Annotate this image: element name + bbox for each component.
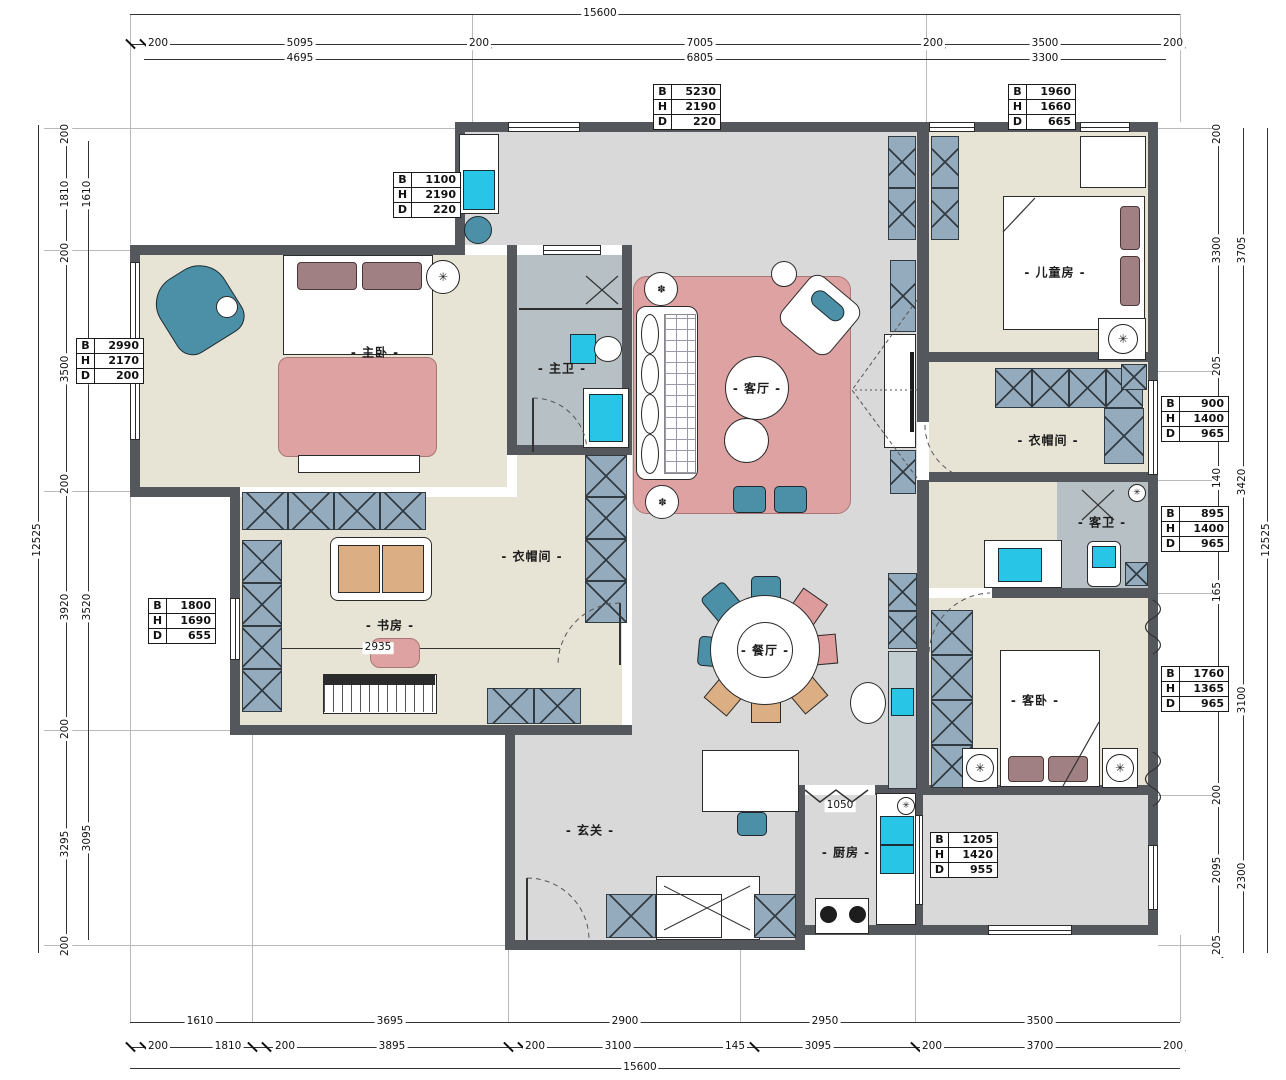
wardrobe-cell (585, 539, 627, 581)
spec-row: B5230 (654, 85, 720, 100)
wardrobe-cell (585, 455, 627, 497)
pillow (1048, 756, 1088, 782)
spec-row: B1100 (394, 173, 460, 188)
wardrobe-cell (242, 540, 282, 583)
bath-cabinet (1125, 562, 1148, 586)
spec-key: H (654, 100, 672, 114)
dim: 140 (1212, 466, 1224, 490)
spec-value: 1760 (1180, 667, 1228, 681)
dim: 200 (60, 122, 72, 146)
dim: 5095 (285, 38, 316, 50)
wardrobe-cell (1104, 408, 1144, 464)
ext-line (472, 14, 473, 122)
window-balcony-bottom (988, 925, 1072, 935)
toilet-strip (850, 682, 886, 724)
dim: 200 (1212, 783, 1224, 807)
wardrobe-cell (931, 188, 959, 240)
window-kitchen-balcony (915, 815, 923, 905)
spec-key: B (1162, 507, 1180, 521)
shoe-cabinet (606, 894, 656, 938)
sofa-cushion (641, 434, 659, 474)
room-label-living: - 客厅 - (733, 380, 781, 397)
side-table-living: ✽ (645, 485, 679, 519)
spec-key: D (1162, 697, 1180, 711)
room-label-study: - 书房 - (366, 617, 414, 634)
dim: 200 (921, 38, 945, 50)
dim: 200 (60, 934, 72, 958)
spec-key: H (1162, 522, 1180, 536)
ext-line (1158, 593, 1212, 594)
spec-value: 2190 (672, 100, 720, 114)
dim: 15600 (621, 1062, 658, 1074)
spec-key: H (1009, 100, 1027, 114)
spec-value: 1100 (412, 173, 460, 187)
dim: 3920 (60, 592, 72, 623)
dim: 7005 (685, 38, 716, 50)
coffee-table-small (724, 418, 769, 463)
dim: 1810 (60, 179, 72, 210)
ext-line (740, 950, 741, 1022)
basin (464, 216, 492, 244)
room-label-cloak-left: - 衣帽间 - (501, 548, 562, 565)
window-master-bath (543, 245, 601, 255)
wall-foyer-left (505, 725, 515, 950)
dim: 4695 (285, 53, 316, 65)
armchair-cushion (807, 287, 848, 325)
dim: 3500 (1025, 1016, 1056, 1028)
spec-row: H2190 (654, 100, 720, 115)
dim: 200 (1212, 122, 1224, 146)
cabinet-spec-table: B1760 H1365 D965 (1161, 666, 1229, 712)
wardrobe-cell (534, 688, 581, 724)
spec-row: H1365 (1162, 682, 1228, 697)
dim: 205 (1212, 933, 1224, 957)
spec-row: B900 (1162, 397, 1228, 412)
tv-cabinet-hatch (890, 450, 916, 494)
piano (323, 674, 437, 714)
spec-value: 1960 (1027, 85, 1075, 99)
spec-row: H1660 (1009, 100, 1075, 115)
kitchen-sink (880, 816, 914, 874)
spec-key: H (149, 614, 167, 628)
ext-line (1158, 480, 1212, 481)
room-label-guest-bath: - 客卫 - (1078, 514, 1126, 531)
ext-line (1180, 935, 1181, 1022)
window-balcony-right (1148, 845, 1158, 910)
spec-row: D220 (654, 115, 720, 129)
spec-key: D (1162, 427, 1180, 441)
dim: 3095 (82, 823, 94, 854)
spec-key: D (77, 369, 95, 383)
pantry-cabinet (888, 611, 917, 649)
dim: 3700 (1025, 1041, 1056, 1053)
floor-lamp (771, 261, 797, 287)
spec-value: 1400 (1180, 522, 1228, 536)
spec-value: 2990 (95, 339, 143, 353)
spec-key: B (394, 173, 412, 187)
wardrobe-cell (585, 497, 627, 539)
ext-line (252, 735, 253, 1022)
ext-line (508, 950, 509, 1022)
piano-keys (324, 685, 435, 712)
ceiling-fan-icon: ✳ (1108, 324, 1138, 354)
spec-value: 1205 (949, 833, 997, 847)
wardrobe-cell (242, 626, 282, 669)
ext-line (926, 14, 927, 122)
wardrobe-cell (334, 492, 380, 530)
dim: 200 (146, 1041, 170, 1053)
spec-row: H2170 (77, 354, 143, 369)
dim: 2300 (1237, 861, 1249, 892)
wardrobe-cell (380, 492, 426, 530)
cabinet-spec-table: B1205 H1420 D955 (930, 832, 998, 878)
spec-value: 895 (1180, 507, 1228, 521)
pantry-cabinet (888, 573, 917, 611)
room-label-cloak-right: - 衣帽间 - (1017, 432, 1078, 449)
spec-value: 655 (167, 629, 215, 643)
ext-line (915, 935, 916, 1022)
spec-row: H1400 (1162, 522, 1228, 537)
room-label-kitchen: - 厨房 - (822, 844, 870, 861)
spec-row: H1420 (931, 848, 997, 863)
dim: 200 (273, 1041, 297, 1053)
toilet-bowl-master (594, 336, 622, 362)
spec-key: H (77, 354, 95, 368)
entry-cabinet (656, 894, 722, 938)
side-table-living: ✽ (644, 272, 678, 306)
dim: 165 (1212, 580, 1224, 604)
spec-value: 2190 (412, 188, 460, 202)
spec-row: D200 (77, 369, 143, 383)
window-top-living (508, 122, 580, 132)
toilet-seat-guest (1092, 546, 1116, 568)
spec-key: B (1009, 85, 1027, 99)
burner (849, 906, 866, 923)
spec-row: B2990 (77, 339, 143, 354)
spec-row: D665 (1009, 115, 1075, 129)
wall-guestbed-divider (992, 588, 1158, 598)
spec-row: D965 (1162, 537, 1228, 551)
pillow (297, 262, 357, 290)
spec-row: B1960 (1009, 85, 1075, 100)
dim: 2900 (610, 1016, 641, 1028)
cabinet-spec-table: B1100 H2190 D220 (393, 172, 461, 218)
window-top-right (1080, 122, 1130, 132)
shoe-cabinet (754, 894, 796, 938)
nightstand-children (1080, 136, 1146, 188)
burner (820, 906, 837, 923)
spec-key: H (1162, 682, 1180, 696)
dim: 1610 (185, 1016, 216, 1028)
ext-line (1158, 128, 1212, 129)
wardrobe-cell (931, 655, 973, 700)
sofa-cushion (382, 545, 424, 593)
wall-master-top (130, 245, 465, 255)
spec-key: D (149, 629, 167, 643)
side-table-master (216, 296, 238, 318)
dim: 3500 (1030, 38, 1061, 50)
vent-icon: ✳ (897, 797, 915, 815)
spec-key: B (931, 833, 949, 847)
wardrobe-cell (1121, 364, 1147, 390)
spec-value: 220 (412, 203, 460, 217)
room-label-master: - 主卧 - (351, 344, 399, 361)
spec-value: 5230 (672, 85, 720, 99)
spec-value: 1400 (1180, 412, 1228, 426)
spec-key: D (931, 863, 949, 877)
wardrobe-cell (995, 368, 1032, 408)
wall-study-bottom (230, 725, 632, 735)
dim-line (130, 1022, 1180, 1023)
dim: 6805 (685, 53, 716, 65)
dim: 200 (920, 1041, 944, 1053)
wall-center-right-upper (917, 122, 929, 422)
cabinet-spec-table: B900 H1400 D965 (1161, 396, 1229, 442)
wardrobe-cell (1069, 368, 1106, 408)
ext-line (1158, 945, 1212, 946)
console-cabinet (702, 750, 799, 812)
dim-line (88, 141, 89, 940)
spec-value: 965 (1180, 697, 1228, 711)
spec-value: 965 (1180, 537, 1228, 551)
ext-line (1158, 371, 1212, 372)
spec-value: 1800 (167, 599, 215, 613)
ottoman (774, 486, 807, 513)
window-right-cloak (1148, 380, 1158, 475)
spec-key: B (77, 339, 95, 353)
dim: 2950 (810, 1016, 841, 1028)
dim: 3420 (1237, 467, 1249, 498)
dim: 1610 (82, 179, 94, 210)
dim: 3300 (1212, 235, 1224, 266)
spec-key: B (1162, 667, 1180, 681)
ext-line (44, 730, 230, 731)
sofa-cushion (641, 394, 659, 434)
room-label-dining: - 餐厅 - (741, 642, 789, 659)
dim: 1810 (213, 1041, 244, 1053)
stool (737, 812, 767, 836)
room-label-master-bath: - 主卫 - (538, 360, 586, 377)
cabinet-spec-table: B1800 H1690 D655 (148, 598, 216, 644)
wardrobe-cell (931, 136, 959, 188)
flower-icon: ✽ (658, 498, 667, 509)
spec-key: D (654, 115, 672, 129)
spec-key: B (1162, 397, 1180, 411)
dim: 205 (1212, 354, 1224, 378)
cabinet-spec-table: B2990 H2170 D200 (76, 338, 144, 384)
wall-step-left (130, 487, 240, 497)
spec-value: 665 (1027, 115, 1075, 129)
dim: 3100 (603, 1041, 634, 1053)
wall-cloak-divider (929, 472, 1158, 482)
ext-line (130, 14, 131, 244)
sofa-cushion (641, 314, 659, 354)
dim-kitchen-opening: 1050 (825, 800, 856, 812)
spec-row: D955 (931, 863, 997, 877)
spec-key: B (654, 85, 672, 99)
spec-row: B1760 (1162, 667, 1228, 682)
dim: 3500 (60, 354, 72, 385)
ceiling-fan-icon: ✳ (1106, 754, 1134, 782)
wardrobe-cell (888, 188, 916, 240)
spec-key: D (1009, 115, 1027, 129)
dim: 200 (60, 472, 72, 496)
wall-right (1148, 122, 1158, 935)
wall-center-right-lower (917, 480, 929, 795)
dim: 3100 (1237, 685, 1249, 716)
room-label-guest-bed: - 客卧 - (1011, 692, 1059, 709)
spec-key: H (931, 848, 949, 862)
shower-glass (519, 308, 622, 310)
sink-guest (998, 548, 1042, 582)
vent-icon: ✳ (1128, 484, 1146, 502)
spec-value: 220 (672, 115, 720, 129)
spec-row: D965 (1162, 427, 1228, 441)
wall-foyer-bottom (505, 940, 805, 950)
tv-cabinet-hatch (890, 260, 916, 332)
pillow (1120, 206, 1140, 250)
spec-row: H1690 (149, 614, 215, 629)
spec-key: D (394, 203, 412, 217)
dim: 3520 (82, 592, 94, 623)
spec-row: D655 (149, 629, 215, 643)
spec-value: 955 (949, 863, 997, 877)
spec-value: 900 (1180, 397, 1228, 411)
pillow (362, 262, 422, 290)
dim: 200 (60, 717, 72, 741)
wardrobe-cell (242, 669, 282, 712)
spec-row: D965 (1162, 697, 1228, 711)
tv-screen (910, 352, 914, 432)
dim: 3095 (803, 1041, 834, 1053)
window-top-children (929, 122, 975, 132)
dim: 145 (723, 1041, 747, 1053)
spec-key: B (149, 599, 167, 613)
dim: 3300 (1030, 53, 1061, 65)
spec-row: D220 (394, 203, 460, 217)
dim-study-width: 2935 (363, 642, 394, 654)
spec-value: 200 (95, 369, 143, 383)
spec-row: H2190 (394, 188, 460, 203)
dim: 12525 (1261, 521, 1273, 558)
cabinet-spec-table: B5230 H2190 D220 (653, 84, 721, 130)
dim: 200 (467, 38, 491, 50)
dim: 3705 (1237, 235, 1249, 266)
floor-plan: ✳ 2935 ✽ ✽ (0, 0, 1286, 1080)
flower-icon: ✽ (657, 285, 666, 296)
window-study (230, 598, 240, 660)
wardrobe-cell (585, 581, 627, 623)
sofa-cushion (641, 354, 659, 394)
dim: 200 (523, 1041, 547, 1053)
wardrobe-cell (242, 492, 288, 530)
room-label-foyer: - 玄关 - (566, 822, 614, 839)
dim: 12525 (32, 521, 44, 558)
spec-row: B895 (1162, 507, 1228, 522)
wardrobe-cell (888, 136, 916, 188)
spec-row: B1205 (931, 833, 997, 848)
wall-master-bath-left (507, 245, 517, 455)
bench-master (298, 455, 420, 473)
spec-row: H1400 (1162, 412, 1228, 427)
room-label-children: - 儿童房 - (1024, 264, 1085, 281)
ext-line (44, 128, 455, 129)
ext-line (44, 250, 130, 251)
spec-row: B1800 (149, 599, 215, 614)
wardrobe-cell (487, 688, 534, 724)
sink-strip (891, 688, 914, 716)
cabinet-spec-table: B1960 H1660 D665 (1008, 84, 1076, 130)
sink-master (589, 394, 623, 442)
pillow (1008, 756, 1044, 782)
ceiling-fan-icon: ✳ (966, 754, 994, 782)
spec-key: D (1162, 537, 1180, 551)
spec-value: 2170 (95, 354, 143, 368)
dim: 15600 (581, 8, 618, 20)
piano-lid (324, 675, 435, 685)
ext-line (130, 497, 131, 1022)
dim: 200 (146, 38, 170, 50)
ext-line (44, 945, 505, 946)
dim: 200 (1161, 1041, 1185, 1053)
spec-value: 1365 (1180, 682, 1228, 696)
dim: 200 (1161, 38, 1185, 50)
wardrobe-cell (931, 610, 973, 655)
dim: 200 (60, 241, 72, 265)
spec-value: 965 (1180, 427, 1228, 441)
ext-line (1158, 795, 1212, 796)
ext-line (1180, 14, 1181, 122)
washer (463, 170, 495, 210)
rug-master (278, 357, 437, 457)
pillow (1120, 256, 1140, 306)
spec-value: 1660 (1027, 100, 1075, 114)
counter-strip (888, 651, 917, 789)
spec-key: H (394, 188, 412, 202)
spec-value: 1690 (167, 614, 215, 628)
sofa-cushion (338, 545, 380, 593)
wardrobe-cell (288, 492, 334, 530)
wardrobe-cell (242, 583, 282, 626)
ceiling-fan-icon: ✳ (426, 260, 460, 294)
dim: 3295 (60, 829, 72, 860)
dim: 3695 (375, 1016, 406, 1028)
spec-key: H (1162, 412, 1180, 426)
wardrobe-cell (1032, 368, 1069, 408)
dim: 3895 (377, 1041, 408, 1053)
dim-line (130, 14, 1180, 15)
dim: 2095 (1212, 855, 1224, 886)
cabinet-spec-table: B895 H1400 D965 (1161, 506, 1229, 552)
wardrobe-cell (931, 700, 973, 745)
ottoman (733, 486, 766, 513)
sofa-blanket (664, 314, 696, 474)
spec-value: 1420 (949, 848, 997, 862)
